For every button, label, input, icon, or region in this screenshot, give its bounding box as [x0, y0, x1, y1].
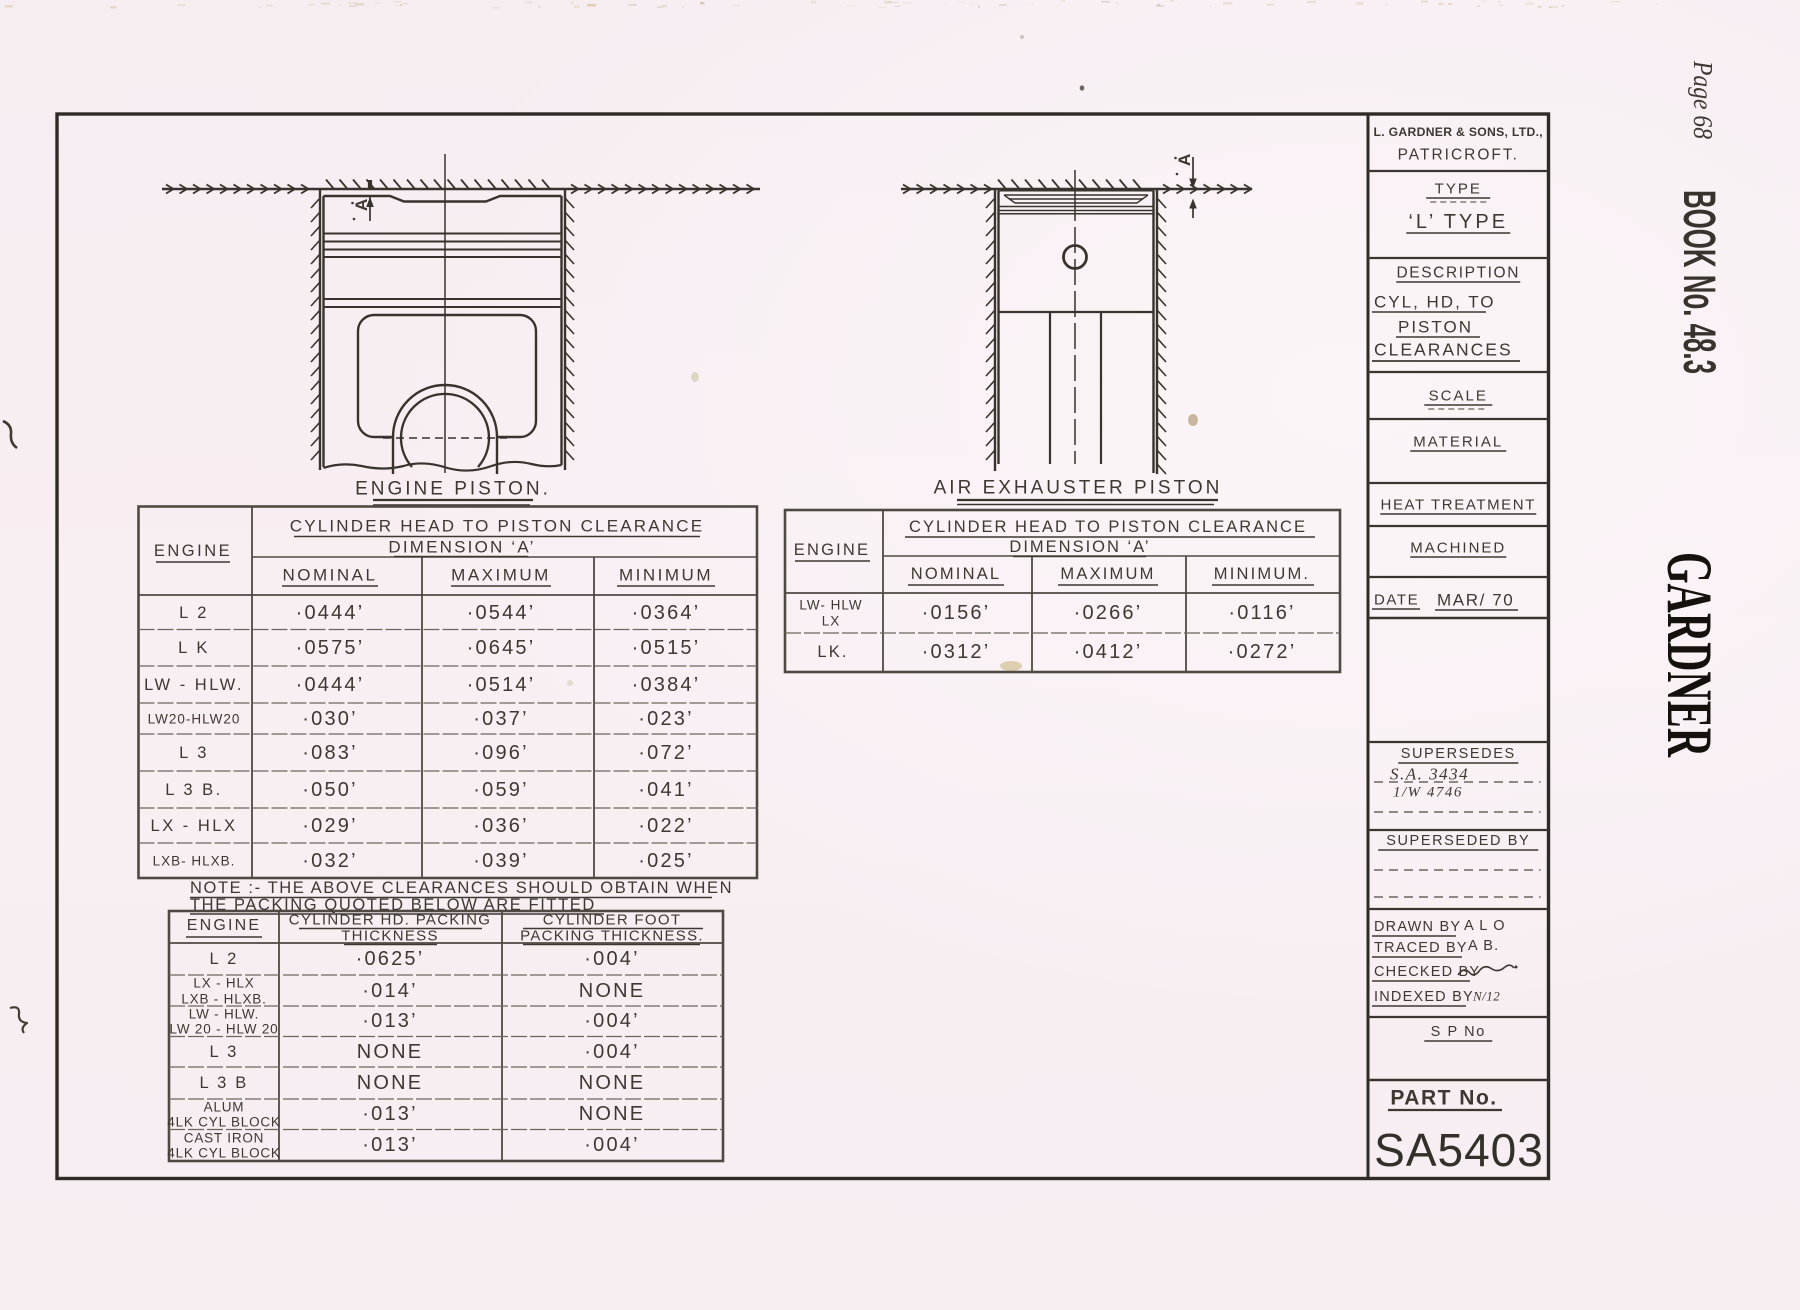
- svg-text:GARDNER: GARDNER: [1653, 552, 1725, 758]
- svg-text:A: A: [352, 199, 371, 211]
- svg-text:Page 68: Page 68: [1688, 60, 1718, 139]
- svg-text:A: A: [1175, 154, 1194, 166]
- svg-text:BOOK No. 48.3: BOOK No. 48.3: [1674, 190, 1725, 374]
